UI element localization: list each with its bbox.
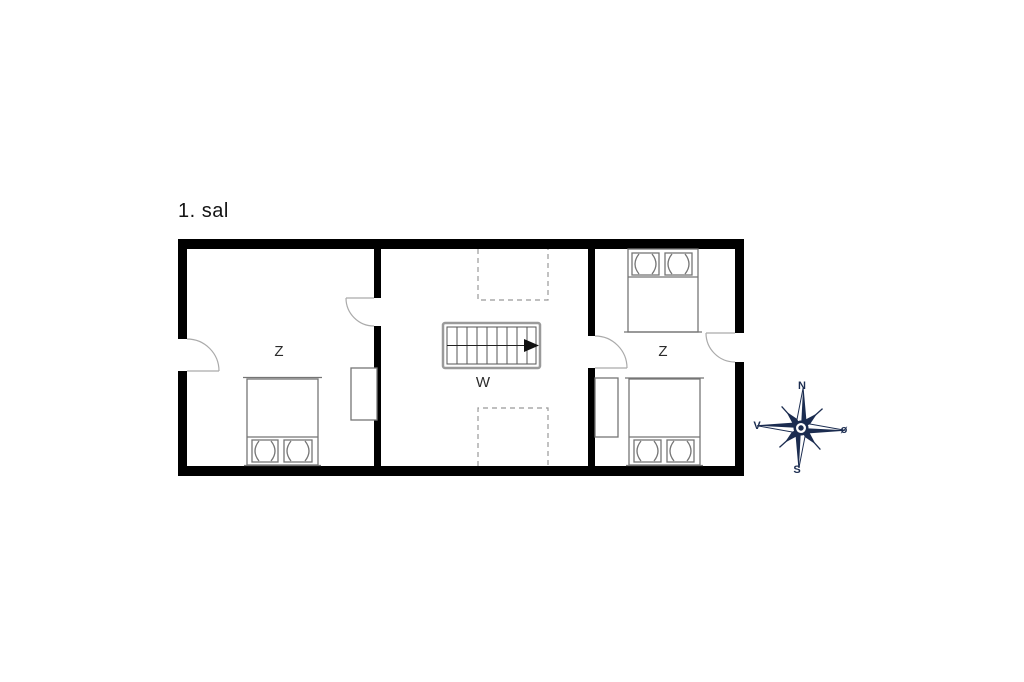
bed-frame (629, 379, 700, 465)
bed-east-south (625, 378, 704, 466)
wall-east-upper (735, 239, 744, 333)
staircase (443, 323, 540, 368)
floor-plan-page: 1. sal (0, 0, 1024, 682)
wardrobe-west (351, 368, 377, 420)
compass-rose: N S V ø (753, 380, 847, 476)
door-swing-arc (187, 339, 219, 371)
door-hall-east (595, 336, 627, 368)
wall-west-lower (178, 371, 187, 476)
compass-label-north: N (798, 380, 806, 392)
floor-plan: Z W Z (0, 0, 1024, 682)
wall-south (178, 466, 744, 476)
bed-east-north (624, 249, 702, 332)
room-label-hallway: W (476, 374, 491, 391)
compass-label-west: V (753, 420, 761, 432)
wardrobe-east (595, 378, 618, 437)
wall-east-lower (735, 362, 744, 476)
wall-interior-east-upper (588, 249, 595, 336)
bed-frame (628, 249, 698, 332)
wall-interior-east-lower (588, 368, 595, 466)
door-east-exterior (706, 333, 735, 362)
door-swing-arc (595, 336, 627, 368)
wall-interior-west-upper (374, 249, 381, 298)
bed-west (243, 378, 322, 466)
bed-frame (247, 379, 318, 465)
wall-west-upper (178, 239, 187, 339)
door-west-exterior (187, 339, 219, 371)
dashed-opening-south (478, 408, 548, 466)
wall-north (178, 239, 744, 249)
dashed-opening-north (478, 249, 548, 300)
door-swing-arc (346, 298, 374, 326)
room-label-bedroom-west: Z (274, 343, 283, 360)
door-swing-arc (706, 333, 735, 362)
door-hall-west (346, 298, 374, 326)
compass-label-south: S (793, 464, 800, 476)
compass-label-east: ø (841, 424, 848, 436)
room-label-bedroom-east: Z (658, 343, 667, 360)
